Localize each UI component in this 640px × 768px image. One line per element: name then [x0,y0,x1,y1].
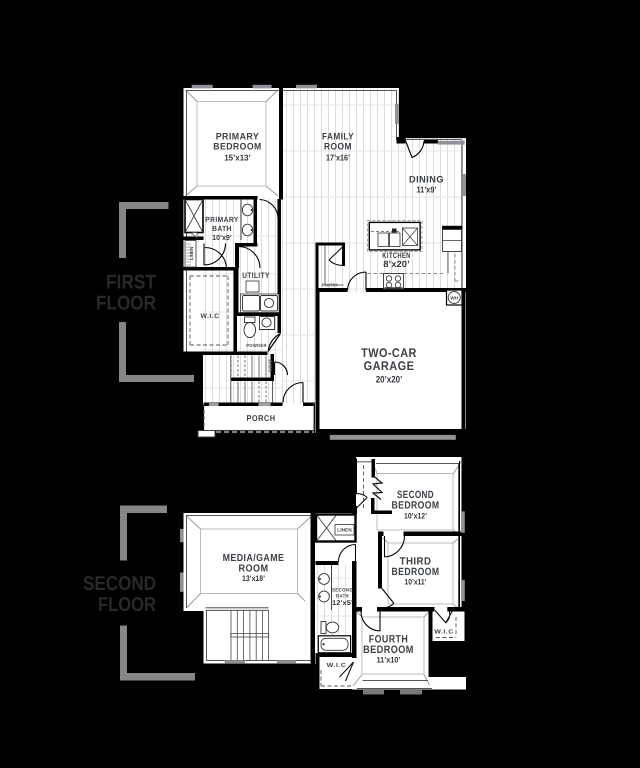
svg-text:BATH: BATH [212,224,232,233]
svg-text:FLOOR: FLOOR [96,293,156,315]
svg-text:ROOM: ROOM [324,142,352,153]
svg-text:11’x9’: 11’x9’ [417,185,437,195]
svg-text:PORCH: PORCH [247,413,276,423]
svg-text:FIRST: FIRST [106,272,156,294]
svg-text:BEDROOM: BEDROOM [392,500,440,512]
svg-text:BEDROOM: BEDROOM [392,566,440,578]
svg-text:W.I.C: W.I.C [327,662,347,669]
svg-text:11’x10’: 11’x10’ [377,656,401,665]
svg-text:UTILITY: UTILITY [242,271,270,280]
svg-text:COAT: COAT [268,359,274,372]
svg-text:BEDROOM: BEDROOM [363,644,414,656]
svg-text:BEDROOM: BEDROOM [213,142,261,153]
svg-text:10’x9’: 10’x9’ [212,233,232,242]
svg-text:10’x12’: 10’x12’ [404,512,427,521]
svg-text:PRIMARY: PRIMARY [205,215,239,224]
svg-text:15’x13’: 15’x13’ [224,153,251,163]
svg-text:ROOM: ROOM [239,564,269,575]
svg-text:17’x16’: 17’x16’ [326,153,350,163]
svg-text:FLOOR: FLOOR [98,594,156,616]
svg-text:13’x18’: 13’x18’ [242,574,265,583]
svg-text:10’x11’: 10’x11’ [405,578,427,587]
svg-text:SECOND: SECOND [83,573,156,595]
svg-text:20’x20’: 20’x20’ [376,375,403,386]
svg-text:W.I.C: W.I.C [200,313,219,320]
svg-text:12’x5’: 12’x5’ [332,600,353,607]
svg-text:W.I.C: W.I.C [434,629,454,636]
svg-text:LINEN: LINEN [337,528,352,534]
svg-text:BATH: BATH [336,594,349,600]
svg-text:GARAGE: GARAGE [364,359,415,373]
svg-text:MEDIA/GAME: MEDIA/GAME [223,553,285,564]
svg-text:POWDER: POWDER [246,343,267,348]
svg-text:WH: WH [450,296,458,301]
svg-text:8’x20’: 8’x20’ [383,259,410,269]
svg-text:LINEN: LINEN [189,247,194,261]
svg-text:PANTRY: PANTRY [322,283,338,288]
svg-text:TWO-CAR: TWO-CAR [361,346,417,360]
